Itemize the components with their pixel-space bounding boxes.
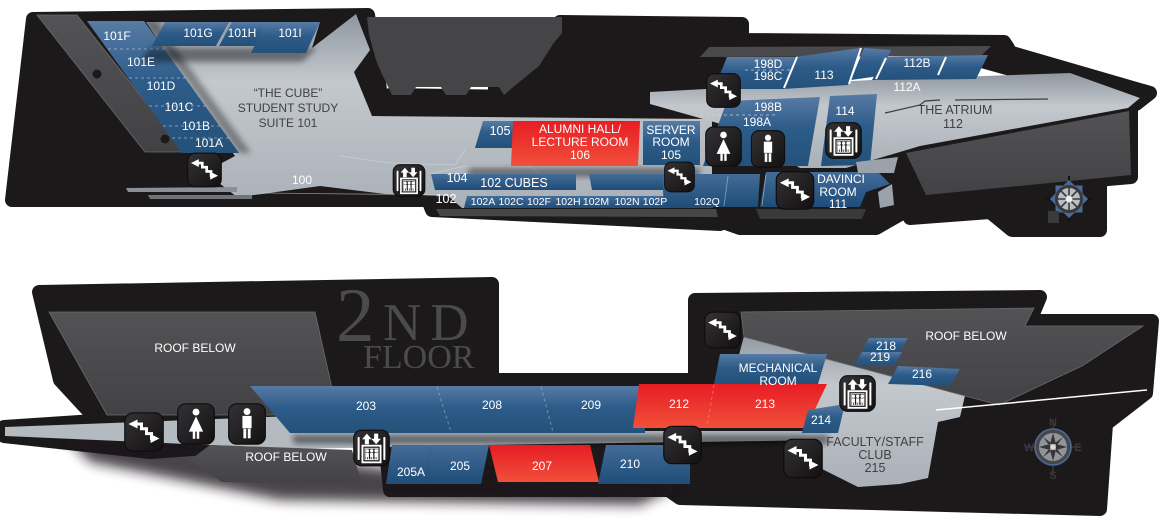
svg-text:205: 205 (450, 459, 470, 473)
svg-text:214: 214 (811, 413, 831, 427)
svg-text:S: S (1049, 470, 1056, 482)
svg-text:106: 106 (570, 148, 590, 162)
svg-text:112A: 112A (893, 80, 920, 94)
svg-text:CLUB: CLUB (858, 448, 891, 462)
svg-text:112B: 112B (903, 56, 930, 70)
svg-text:THE ATRIUM: THE ATRIUM (918, 103, 993, 117)
svg-text:E: E (1074, 442, 1081, 454)
svg-text:215: 215 (865, 461, 886, 475)
svg-text:101D: 101D (147, 79, 176, 93)
svg-text:LECTURE ROOM: LECTURE ROOM (532, 135, 629, 149)
svg-text:ALUMNI HALL/: ALUMNI HALL/ (539, 122, 622, 136)
svg-text:ROOF BELOW: ROOF BELOW (154, 341, 236, 355)
svg-text:101B: 101B (182, 119, 210, 133)
svg-text:102N: 102N (614, 196, 639, 208)
svg-text:102 CUBES: 102 CUBES (480, 176, 547, 190)
svg-text:105: 105 (661, 148, 681, 162)
svg-text:102H: 102H (555, 196, 580, 208)
svg-text:104: 104 (447, 171, 468, 185)
svg-text:102A: 102A (471, 196, 496, 208)
svg-text:STUDENT STUDY: STUDENT STUDY (238, 101, 338, 115)
svg-text:216: 216 (912, 367, 932, 381)
svg-text:209: 209 (581, 398, 601, 412)
svg-text:W: W (1024, 442, 1035, 454)
svg-text:SUITE 101: SUITE 101 (259, 116, 318, 130)
svg-text:101I: 101I (278, 26, 301, 40)
svg-text:100: 100 (292, 173, 312, 187)
svg-text:198A: 198A (743, 115, 771, 129)
svg-text:207: 207 (532, 459, 552, 473)
svg-text:102P: 102P (643, 196, 668, 208)
svg-text:101C: 101C (165, 100, 194, 114)
svg-text:ROOM: ROOM (759, 374, 796, 388)
svg-text:102Q: 102Q (694, 196, 720, 208)
svg-text:113: 113 (814, 68, 833, 82)
svg-text:101A: 101A (195, 136, 223, 150)
svg-text:114: 114 (835, 104, 854, 118)
svg-text:FLOOR: FLOOR (363, 339, 475, 376)
svg-text:102F: 102F (527, 196, 551, 208)
svg-text:203: 203 (356, 399, 376, 413)
svg-text:219: 219 (870, 350, 890, 364)
svg-text:210: 210 (620, 457, 640, 471)
svg-text:DAVINCI: DAVINCI (817, 172, 865, 186)
svg-text:112: 112 (943, 117, 963, 131)
svg-text:105: 105 (490, 124, 511, 138)
svg-text:198B: 198B (754, 100, 782, 114)
svg-text:ROOM: ROOM (652, 135, 689, 149)
svg-text:ROOF BELOW: ROOF BELOW (245, 450, 327, 464)
svg-text:101H: 101H (228, 26, 257, 40)
svg-text:“THE CUBE”: “THE CUBE” (254, 86, 323, 100)
svg-text:212: 212 (669, 397, 689, 411)
svg-text:213: 213 (755, 397, 775, 411)
svg-text:102C: 102C (498, 196, 524, 208)
svg-text:102M: 102M (583, 196, 609, 208)
svg-text:FACULTY/STAFF: FACULTY/STAFF (826, 435, 924, 449)
svg-text:MECHANICAL: MECHANICAL (739, 361, 818, 375)
svg-text:205A: 205A (397, 465, 425, 479)
svg-text:N: N (1049, 417, 1057, 429)
svg-text:102: 102 (436, 192, 457, 206)
svg-text:101G: 101G (183, 26, 212, 40)
svg-text:111: 111 (829, 197, 848, 211)
svg-text:ROOF BELOW: ROOF BELOW (925, 329, 1007, 343)
svg-text:101E: 101E (127, 55, 155, 69)
svg-text:101F: 101F (103, 29, 130, 43)
svg-text:208: 208 (482, 398, 502, 412)
svg-text:198C: 198C (754, 69, 783, 83)
